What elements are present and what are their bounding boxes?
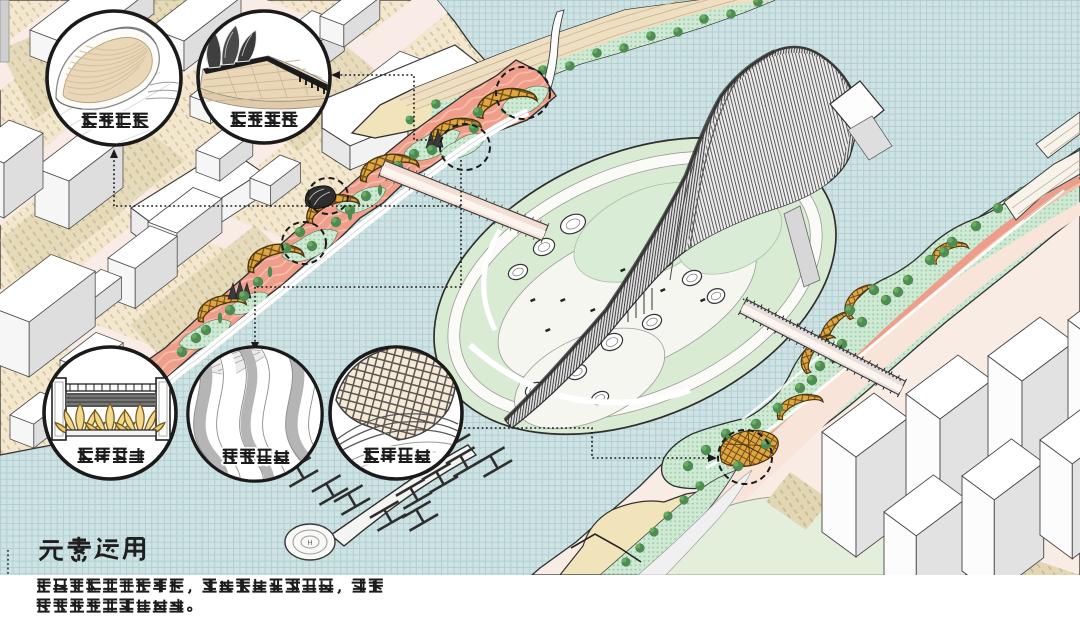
svg-text:H: H bbox=[307, 540, 312, 547]
